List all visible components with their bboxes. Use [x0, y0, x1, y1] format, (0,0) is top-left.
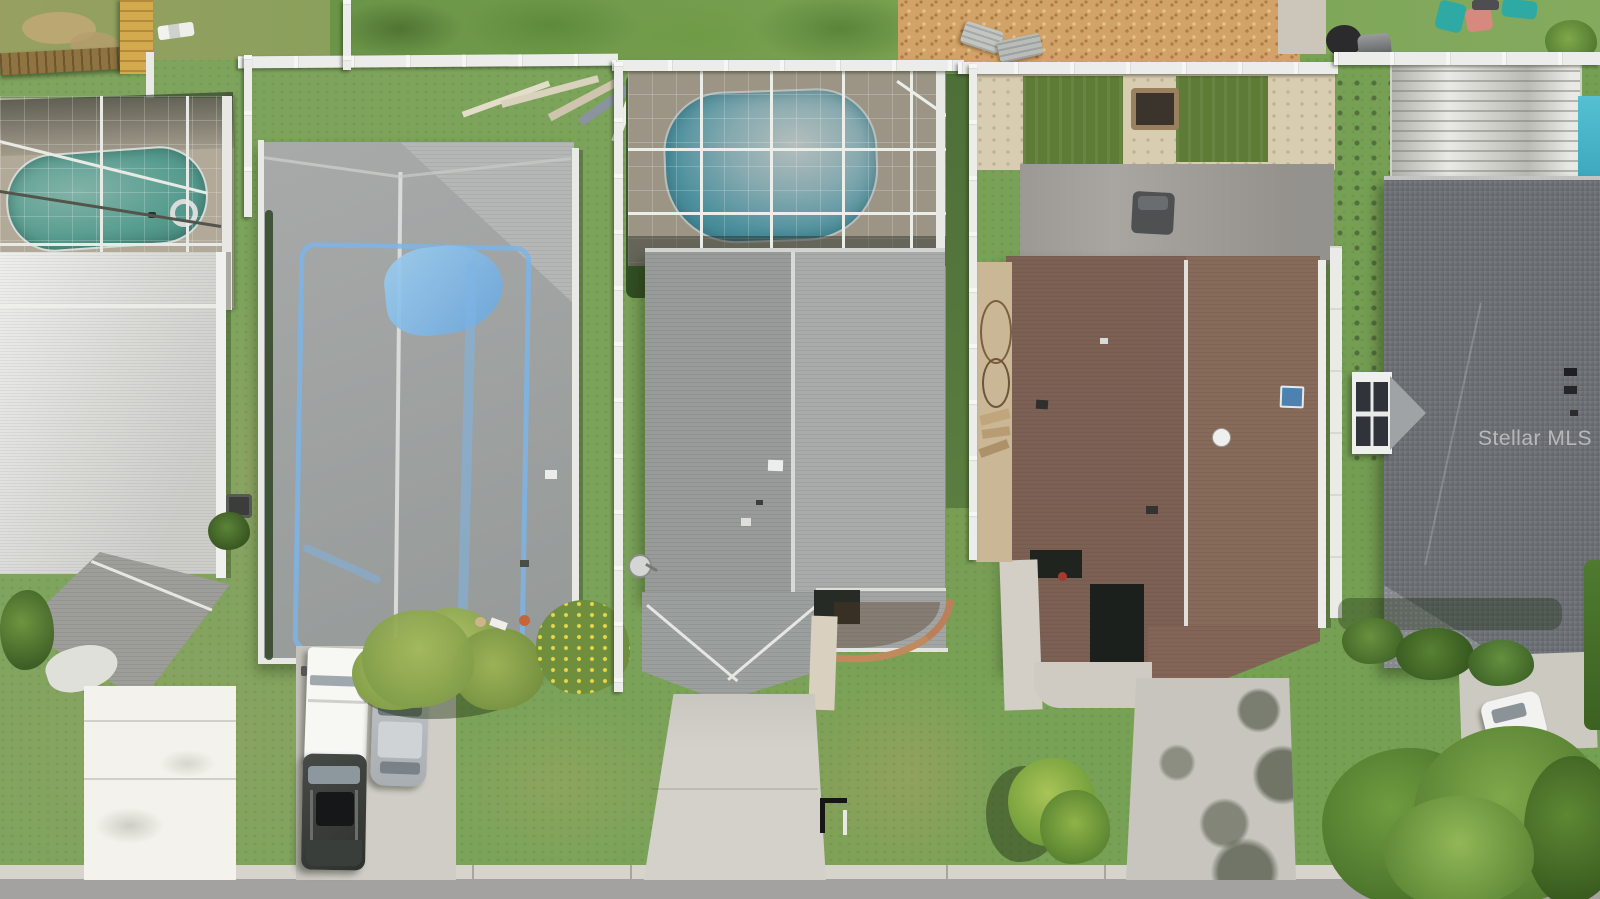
car-roof	[377, 721, 422, 759]
roof-vent-dark	[520, 560, 529, 567]
garden-hose-coil	[980, 300, 1012, 364]
dormer-window-glass	[1356, 382, 1388, 446]
roof-vent	[1100, 338, 1108, 344]
roof-vent-dark	[1570, 410, 1578, 416]
privacy-fence	[612, 60, 964, 71]
roof-vent-dark	[1146, 506, 1158, 514]
house3-roof-right	[793, 250, 945, 598]
house5-roof-edge	[1384, 176, 1600, 180]
enclosure-beam	[0, 243, 232, 246]
privacy-fence	[958, 62, 1338, 74]
mulch-bed	[898, 0, 1300, 62]
suv-sunroof	[316, 792, 354, 826]
concrete-pad	[1278, 0, 1326, 54]
enclosure-frame-right	[936, 70, 945, 266]
enclosure-beam	[770, 70, 773, 266]
car-rear-glass	[380, 761, 420, 774]
house1-metal-roof	[0, 252, 222, 574]
ornamental-grass-over-car	[362, 610, 474, 708]
lanai-metal-roof	[1390, 58, 1582, 188]
wood-deck	[1020, 164, 1334, 264]
driveway-joint	[84, 720, 236, 722]
privacy-fence	[1334, 52, 1600, 65]
privacy-fence-side	[343, 0, 351, 70]
house4-side-wall	[1330, 246, 1342, 618]
debris-tan	[475, 617, 486, 627]
foundation-shrub	[1342, 618, 1404, 664]
garden-hose-coil	[982, 358, 1010, 408]
house2-eave-shadow	[579, 150, 583, 664]
mailbox-white-post	[843, 810, 847, 835]
palm-plant	[1040, 790, 1110, 864]
roof-vent	[768, 460, 783, 472]
courtyard-opening-dark	[1090, 584, 1144, 662]
house3-roof-ridge	[791, 252, 795, 598]
edge-tree	[1584, 560, 1600, 730]
suv-windshield	[308, 766, 360, 784]
aerial-photo: Stellar MLS	[0, 0, 1600, 899]
enclosure-beam	[628, 148, 946, 151]
kids-chair-coral	[1465, 6, 1494, 32]
house1-roof-eave	[0, 304, 222, 308]
enclosure-beam	[842, 70, 845, 266]
grass-strip-dark	[946, 74, 970, 508]
terracotta-pot	[519, 615, 530, 626]
house2-fascia-right	[572, 148, 579, 664]
house3-roof-left	[645, 250, 793, 598]
concrete-walk	[1034, 662, 1152, 708]
roof-vent-dark	[1564, 386, 1577, 394]
roof-vent-dark	[1036, 400, 1049, 410]
grill-lid	[1138, 196, 1168, 210]
house4-fascia-right	[1318, 260, 1326, 628]
bush	[208, 512, 250, 550]
privacy-fence-side	[969, 64, 977, 560]
roof-vent	[741, 518, 751, 526]
fire-pit	[1131, 88, 1179, 130]
enclosure-beam	[910, 70, 913, 266]
mailbox-post-black	[820, 798, 825, 833]
artificial-turf	[1023, 76, 1123, 166]
driveway-joint	[652, 788, 818, 790]
privacy-fence-side	[244, 55, 252, 217]
privacy-fence-side	[614, 62, 623, 692]
enclosure-beam	[700, 70, 703, 266]
roof-vent-dark	[1564, 368, 1577, 376]
driveway-joint	[84, 778, 236, 780]
hedge-strip	[265, 210, 273, 660]
truck-mirror	[301, 666, 307, 676]
house4-roof-right	[1186, 256, 1320, 626]
artificial-turf	[1176, 76, 1268, 162]
roof-vent-dark	[756, 500, 763, 505]
white-painted-driveway	[84, 686, 236, 880]
foundation-shrub	[1396, 628, 1474, 680]
foundation-shrub	[1468, 640, 1534, 686]
tree-canopy	[1384, 796, 1534, 899]
suv-hood	[306, 840, 362, 866]
roof-vent	[545, 470, 557, 479]
enclosure-beam	[628, 212, 946, 215]
house3-eave-top	[645, 248, 945, 252]
house2-eave-left	[258, 140, 264, 664]
skylight	[1280, 386, 1305, 409]
bush	[0, 590, 54, 670]
stellar-mls-watermark: Stellar MLS	[1478, 427, 1592, 451]
house4-roof-ridge	[1184, 260, 1188, 626]
driveway-tree-shadows	[1126, 678, 1296, 880]
pool-corner-blue	[1578, 96, 1600, 188]
yard-item-dark	[1472, 0, 1499, 10]
round-roof-vent	[1212, 428, 1231, 447]
red-object	[1058, 572, 1067, 581]
